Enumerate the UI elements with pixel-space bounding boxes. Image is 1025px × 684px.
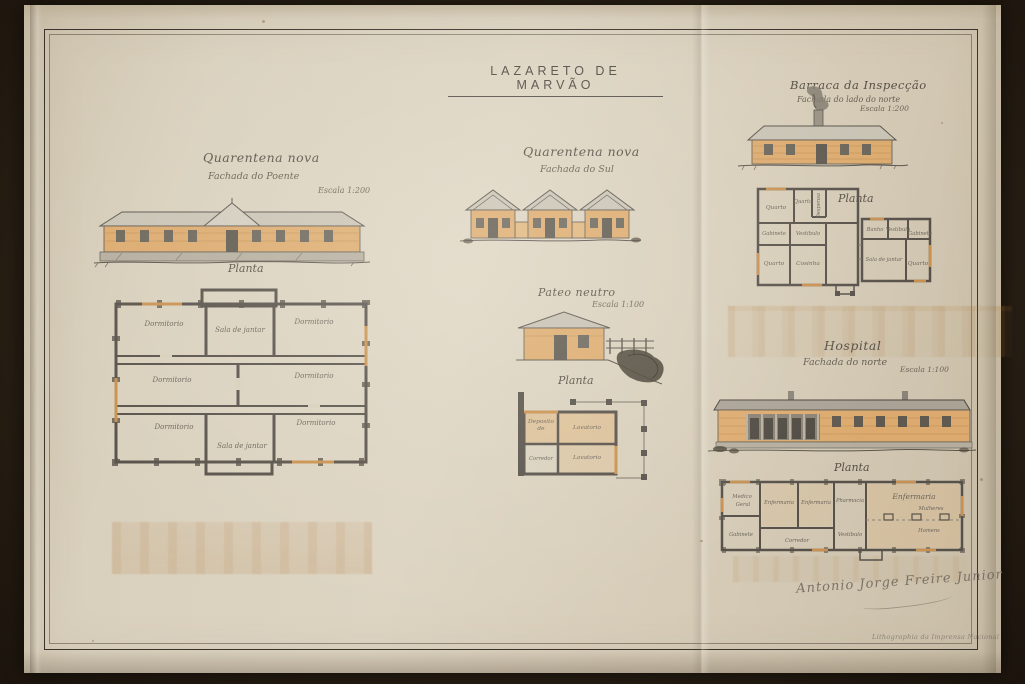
room-label: Dormitorio [295, 372, 334, 380]
room-label: Enfermaria [801, 500, 831, 506]
room-label: Sala de jantar [866, 257, 903, 263]
room-label: Corredor [785, 538, 809, 544]
plate-title-text: LAZARETO DE MARVÃO [448, 64, 663, 97]
quarentena-poente-subtitle: Fachada do Poente [208, 171, 299, 182]
barraca-plan-walls [750, 183, 934, 301]
scanned-plate-photo: LAZARETO DE MARVÃO Quarentena nova Facha… [0, 0, 1025, 684]
hospital-plan: Medico Geral Gabinete Enfermaria Enferma… [716, 472, 968, 564]
quarentena-sul-title: Quarentena nova [523, 144, 640, 159]
room-label: Lavatorio [573, 425, 601, 431]
room-label: Lavatorio [573, 455, 601, 461]
quarentena-poente-title: Quarentena nova [203, 150, 320, 165]
room-label: Dormitorio [145, 320, 184, 328]
hospital-elevation-drawing [706, 378, 978, 462]
room-label: Enfermaria [764, 500, 794, 506]
foxing-speck [262, 20, 265, 23]
room-label: Cosinha [796, 261, 820, 267]
quarentena-poente-scale: Escala 1:200 [318, 186, 370, 195]
room-label: Enfermaria [892, 492, 935, 501]
pateo-title: Pateo neutro [538, 286, 616, 299]
room-label: Vestibulo [796, 231, 820, 237]
foxing-speck [92, 640, 94, 642]
quarentena-poente-plan-label: Planta [228, 262, 264, 275]
room-label: Quarto [764, 261, 785, 267]
room-label: Gabinete [762, 231, 786, 237]
quarentena-poente-plan: Dormitorio Sala de jantar Dormitorio Dor… [102, 282, 380, 480]
room-label: Dormitorio [295, 318, 334, 326]
quarentena-sul-elevation-drawing [458, 182, 643, 252]
room-label: Medico [732, 494, 751, 500]
room-label: Vestibulo [886, 227, 910, 233]
room-label: Quarto [794, 199, 812, 205]
room-label: Deposito de [525, 419, 557, 432]
quarentena-poente-plan-walls [102, 282, 380, 480]
hospital-plan-walls [716, 472, 968, 564]
room-label: Despensa [816, 193, 822, 218]
plate-title: LAZARETO DE MARVÃO [448, 64, 663, 97]
room-label: Mulheres [919, 506, 944, 512]
hospital-subtitle: Fachada do norte [803, 357, 887, 368]
foxing-speck [980, 478, 983, 481]
room-label: Dormitorio [155, 423, 194, 431]
room-label: Homens [918, 528, 940, 534]
pateo-plan: Deposito de Lavatorio Corredor Lavatorio [512, 386, 657, 484]
room-label: Quarto [908, 261, 929, 267]
room-label: Pharmacia [836, 498, 864, 504]
room-label: Quarto [766, 205, 787, 211]
room-label: Dormitorio [153, 376, 192, 384]
barraca-elevation-drawing [732, 84, 912, 180]
foxing-speck [941, 122, 943, 124]
room-label: Gabinete [908, 231, 932, 237]
barraca-plan: Quarto Quarto Despensa Gabinete Vestibul… [750, 183, 934, 301]
hospital-title: Hospital [824, 338, 881, 353]
room-label: Sala de jantar [217, 442, 267, 450]
hospital-scale: Escala 1:100 [900, 365, 949, 374]
lithography-imprint: Lithographia da Imprensa Nacional [872, 633, 999, 641]
room-label: Banho [867, 227, 884, 233]
room-label: Vestibulo [838, 532, 862, 538]
quarentena-sul-subtitle: Fachada do Sul [540, 164, 614, 175]
pateo-plan-walls [512, 386, 657, 484]
room-label: Sala de jantar [215, 326, 265, 334]
room-label: Gabinete [729, 532, 753, 538]
room-label: Geral [736, 502, 750, 508]
quarentena-poente-elevation-drawing [92, 196, 372, 270]
foxing-speck [700, 540, 703, 542]
room-label: Dormitorio [297, 419, 336, 427]
room-label: Corredor [529, 456, 553, 462]
